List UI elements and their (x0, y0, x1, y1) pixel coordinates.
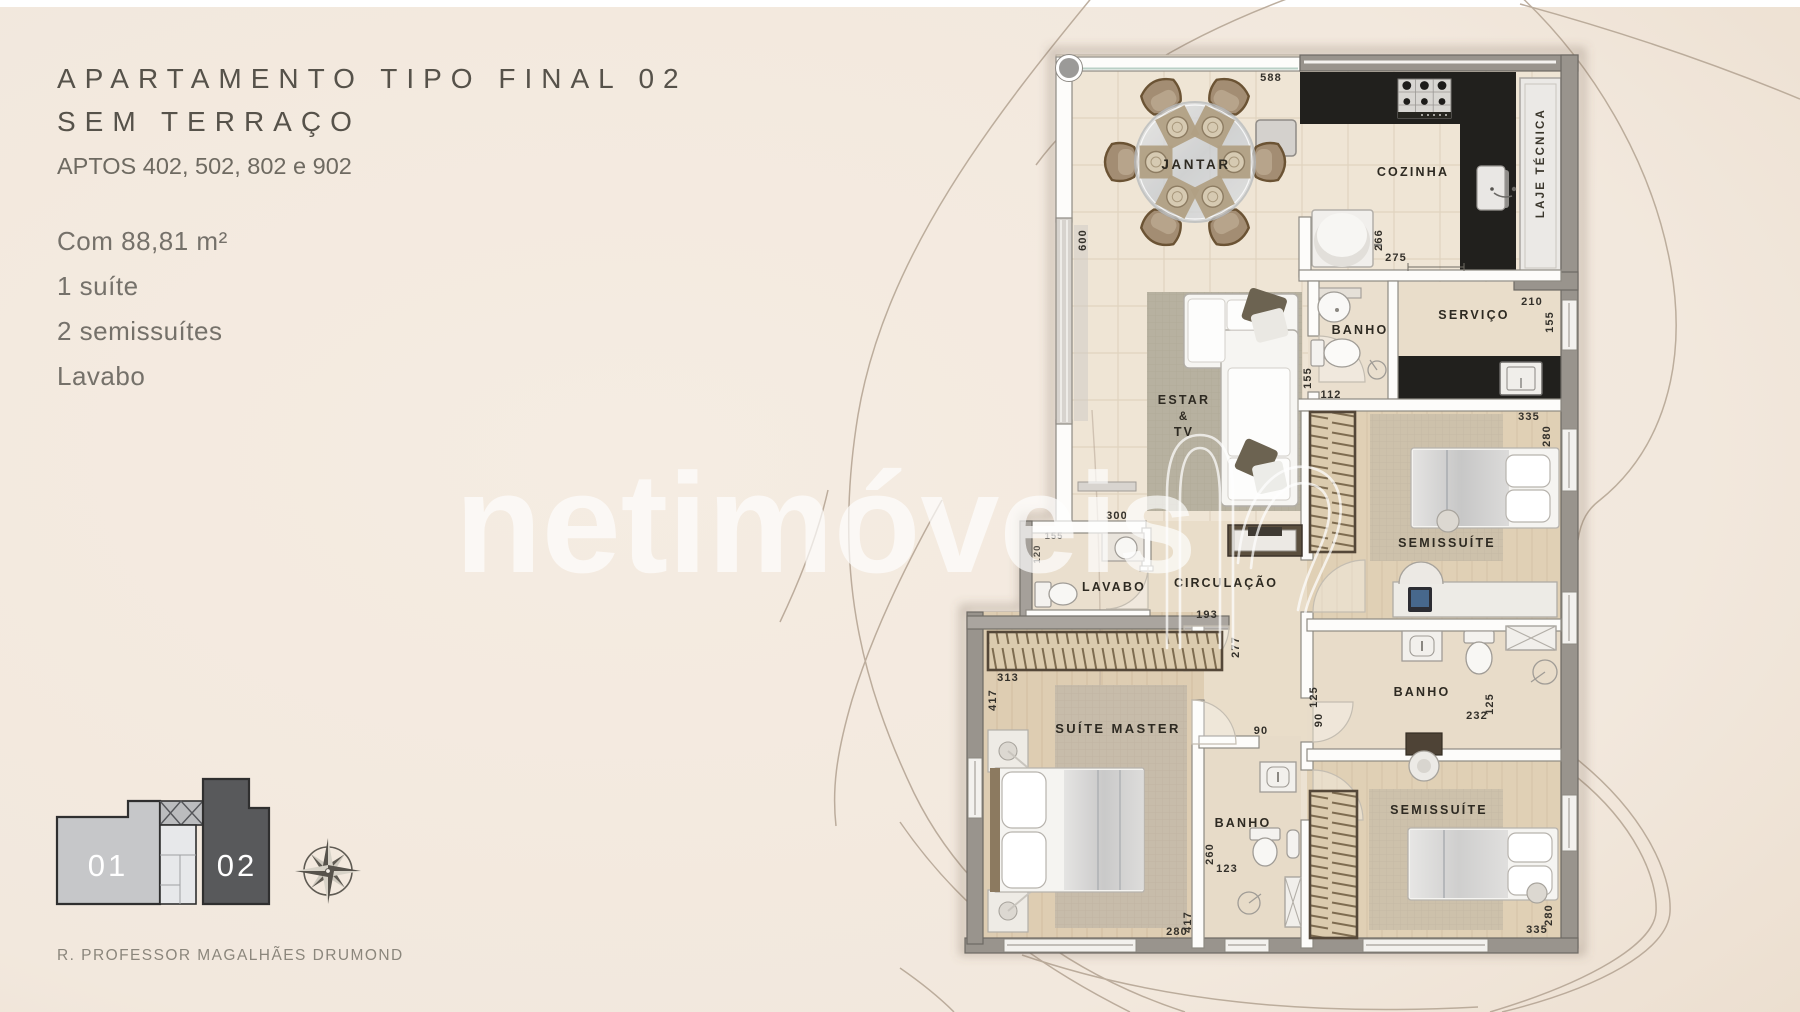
svg-text:210: 210 (1521, 296, 1543, 308)
svg-text:1 suíte: 1 suíte (57, 271, 139, 301)
svg-text:417: 417 (1182, 911, 1194, 933)
svg-text:LAJE TÉCNICA: LAJE TÉCNICA (1534, 108, 1547, 218)
svg-text:R. PROFESSOR MAGALHÃES DRUMOND: R. PROFESSOR MAGALHÃES DRUMOND (57, 947, 404, 964)
svg-text:2 semissuítes: 2 semissuítes (57, 316, 222, 346)
svg-text:90: 90 (1254, 725, 1268, 737)
svg-text:588: 588 (1260, 72, 1282, 84)
svg-text:155: 155 (1544, 311, 1556, 333)
svg-text:SEM TERRAÇO: SEM TERRAÇO (57, 106, 361, 137)
svg-text:280: 280 (1543, 904, 1555, 926)
svg-text:netimóveis: netimóveis (455, 444, 1197, 603)
svg-text:125: 125 (1308, 686, 1320, 708)
svg-text:112: 112 (1320, 389, 1341, 401)
svg-text:275: 275 (1385, 252, 1407, 264)
svg-text:SUÍTE MASTER: SUÍTE MASTER (1055, 721, 1181, 736)
svg-text:280: 280 (1541, 425, 1553, 447)
svg-text:COZINHA: COZINHA (1377, 165, 1449, 179)
svg-text:600: 600 (1077, 229, 1089, 251)
svg-text:123: 123 (1216, 863, 1238, 875)
svg-text:01: 01 (88, 848, 128, 883)
svg-text:313: 313 (997, 672, 1019, 684)
svg-text:APARTAMENTO TIPO FINAL 02: APARTAMENTO TIPO FINAL 02 (57, 63, 688, 94)
svg-text:335: 335 (1518, 411, 1540, 423)
svg-text:266: 266 (1373, 229, 1385, 251)
svg-text:260: 260 (1204, 843, 1216, 865)
svg-text:BANHO: BANHO (1394, 685, 1451, 699)
svg-text:SERVIÇO: SERVIÇO (1438, 308, 1509, 322)
svg-text:Com 88,81 m²: Com 88,81 m² (57, 226, 228, 256)
svg-text:&: & (1179, 411, 1189, 423)
svg-text:SEMISSUÍTE: SEMISSUÍTE (1390, 802, 1488, 817)
svg-text:417: 417 (987, 689, 999, 711)
svg-text:JANTAR: JANTAR (1161, 157, 1230, 172)
svg-text:BANHO: BANHO (1332, 323, 1389, 337)
svg-text:193: 193 (1196, 609, 1218, 621)
svg-text:90: 90 (1313, 713, 1325, 727)
svg-text:Lavabo: Lavabo (57, 361, 145, 391)
svg-text:ESTAR: ESTAR (1158, 393, 1210, 407)
svg-text:SEMISSUÍTE: SEMISSUÍTE (1398, 535, 1496, 550)
svg-text:BANHO: BANHO (1215, 816, 1272, 830)
svg-text:155: 155 (1302, 367, 1314, 389)
svg-text:APTOS 402, 502, 802 e 902: APTOS 402, 502, 802 e 902 (57, 153, 352, 179)
svg-text:02: 02 (217, 848, 257, 883)
svg-text:125: 125 (1484, 693, 1496, 715)
